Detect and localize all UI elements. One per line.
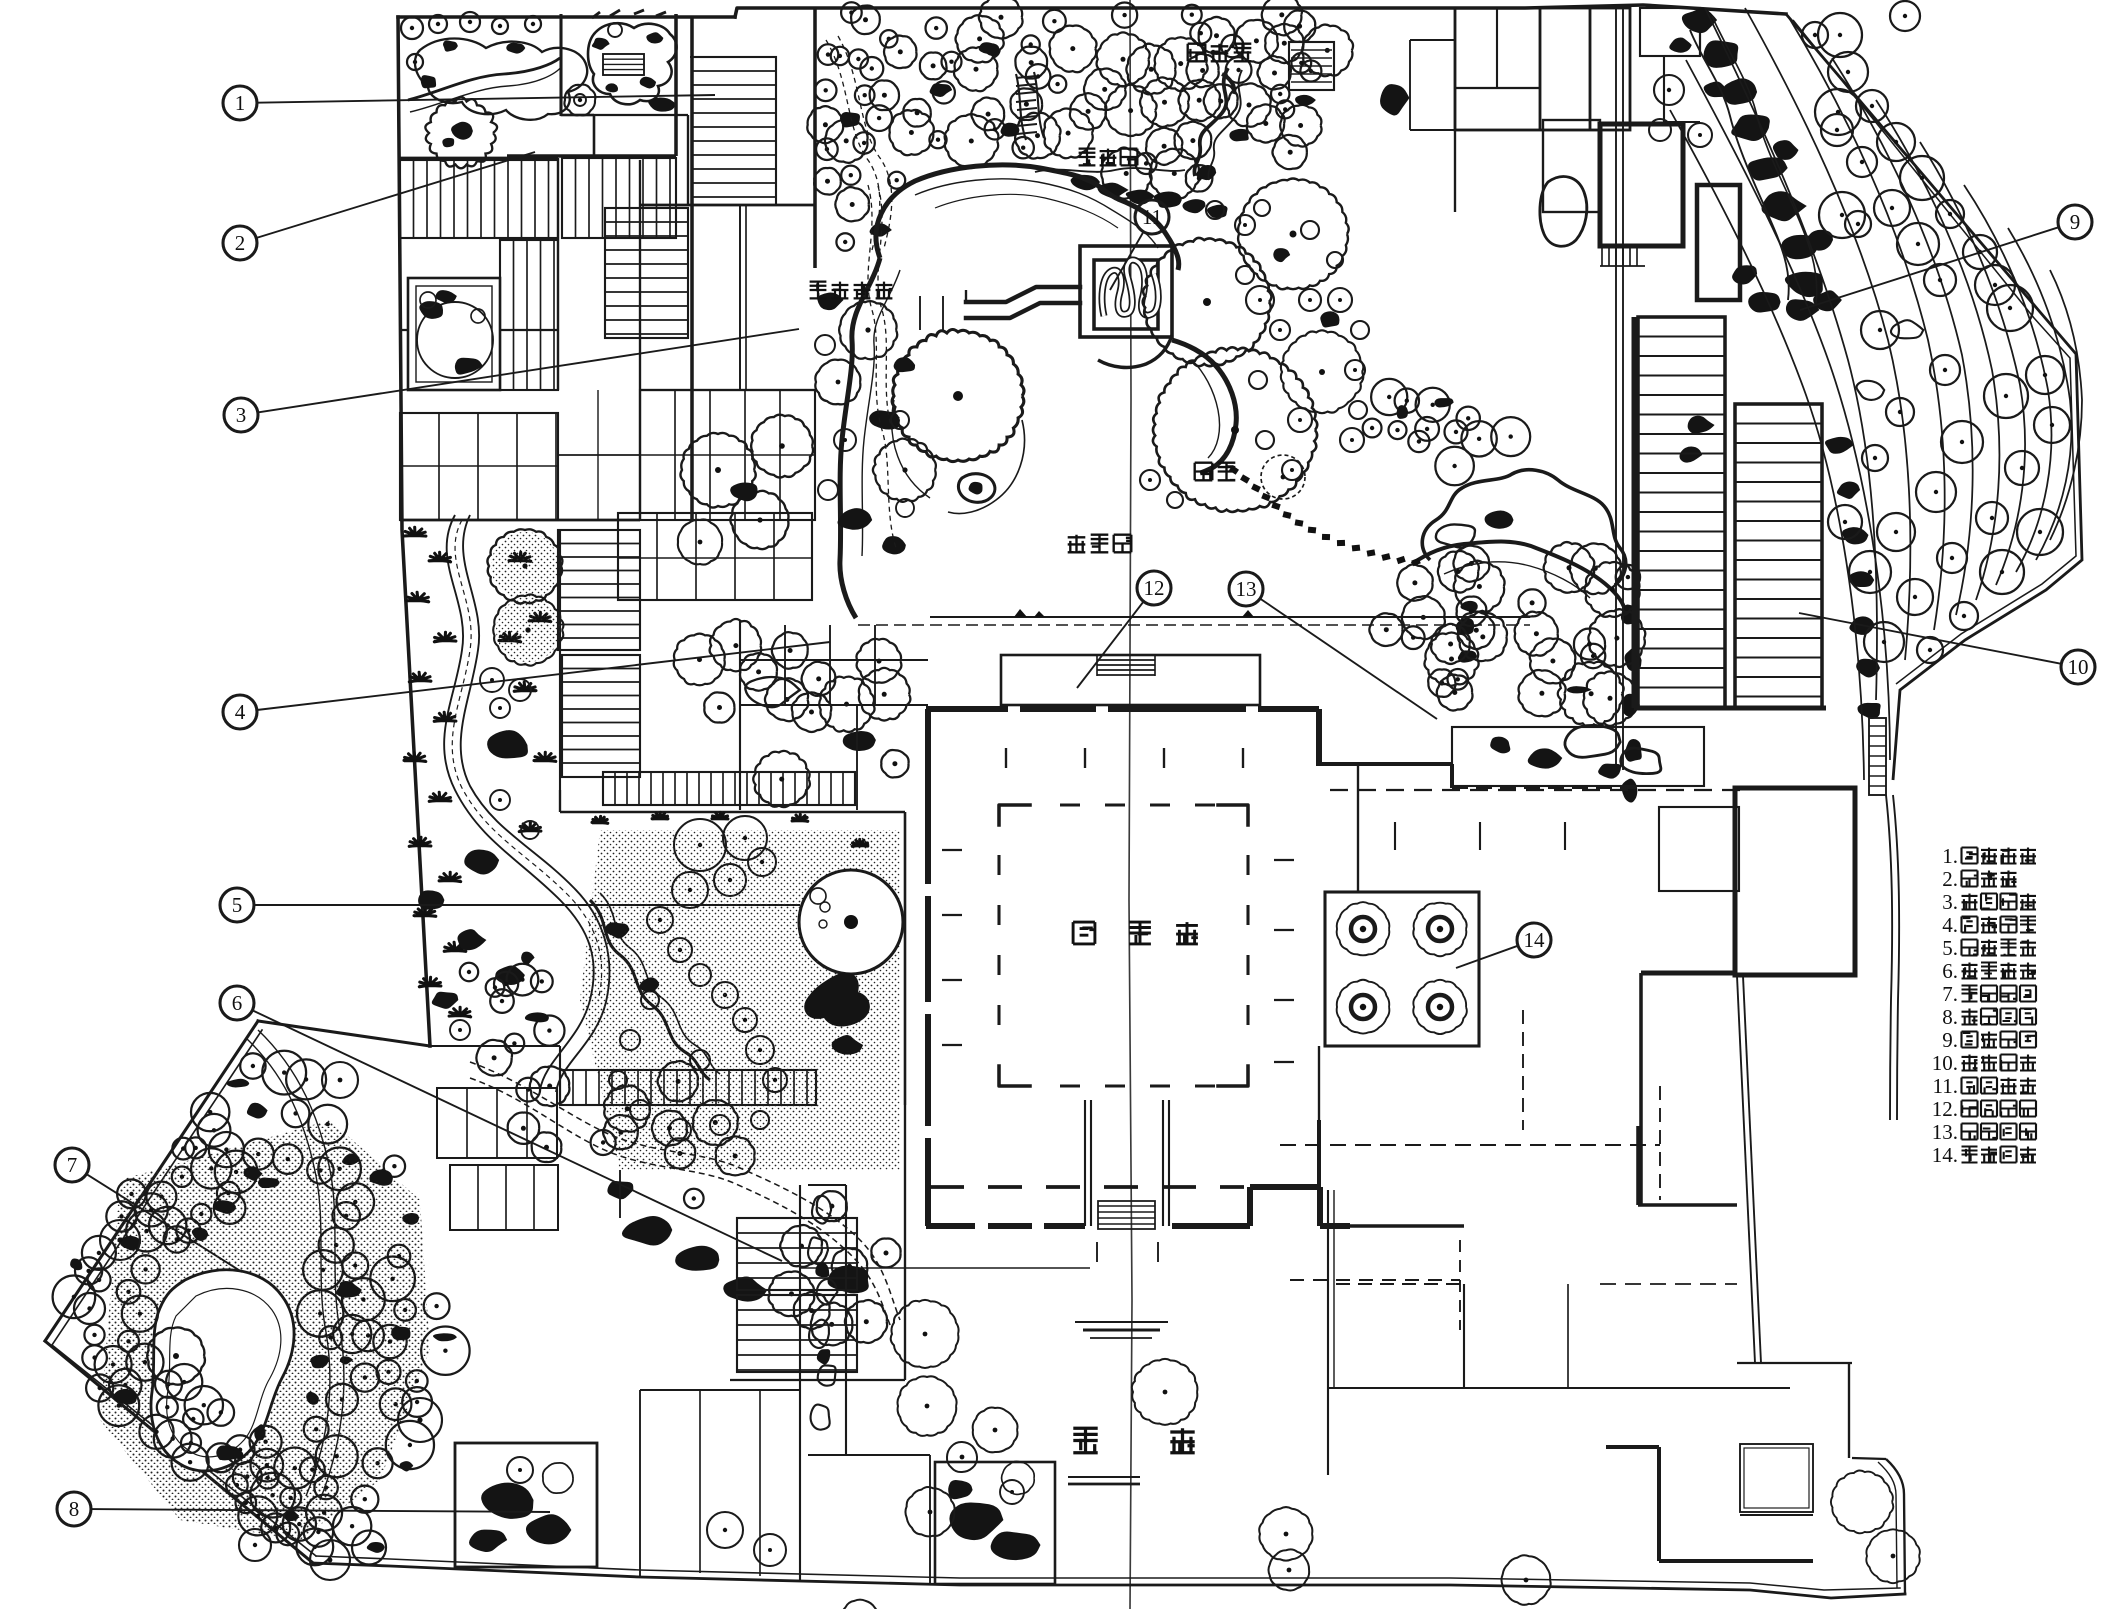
svg-text:11.: 11. [1933,1074,1958,1098]
svg-text:14: 14 [1524,928,1546,952]
svg-text:1.: 1. [1942,844,1958,868]
svg-text:2.: 2. [1942,867,1958,891]
svg-text:9.: 9. [1942,1028,1958,1052]
svg-text:10: 10 [2068,655,2089,679]
svg-text:3.: 3. [1942,890,1958,914]
svg-text:13.: 13. [1932,1120,1958,1144]
svg-text:6: 6 [232,991,243,1015]
svg-text:5: 5 [232,893,243,917]
svg-text:4.: 4. [1942,913,1958,937]
svg-text:3: 3 [236,403,247,427]
svg-text:11: 11 [1142,205,1162,229]
svg-text:4: 4 [235,700,246,724]
svg-text:8: 8 [69,1497,80,1521]
svg-text:1: 1 [235,91,246,115]
svg-text:7.: 7. [1942,982,1958,1006]
svg-text:2: 2 [235,231,246,255]
svg-text:13: 13 [1236,577,1257,601]
svg-text:14.: 14. [1932,1143,1958,1167]
svg-text:8.: 8. [1942,1005,1958,1029]
svg-text:12.: 12. [1932,1097,1958,1121]
svg-text:7: 7 [67,1153,78,1177]
svg-text:9: 9 [2070,210,2081,234]
svg-text:5.: 5. [1942,936,1958,960]
svg-text:10.: 10. [1932,1051,1958,1075]
svg-text:6.: 6. [1942,959,1958,983]
svg-text:12: 12 [1144,576,1165,600]
